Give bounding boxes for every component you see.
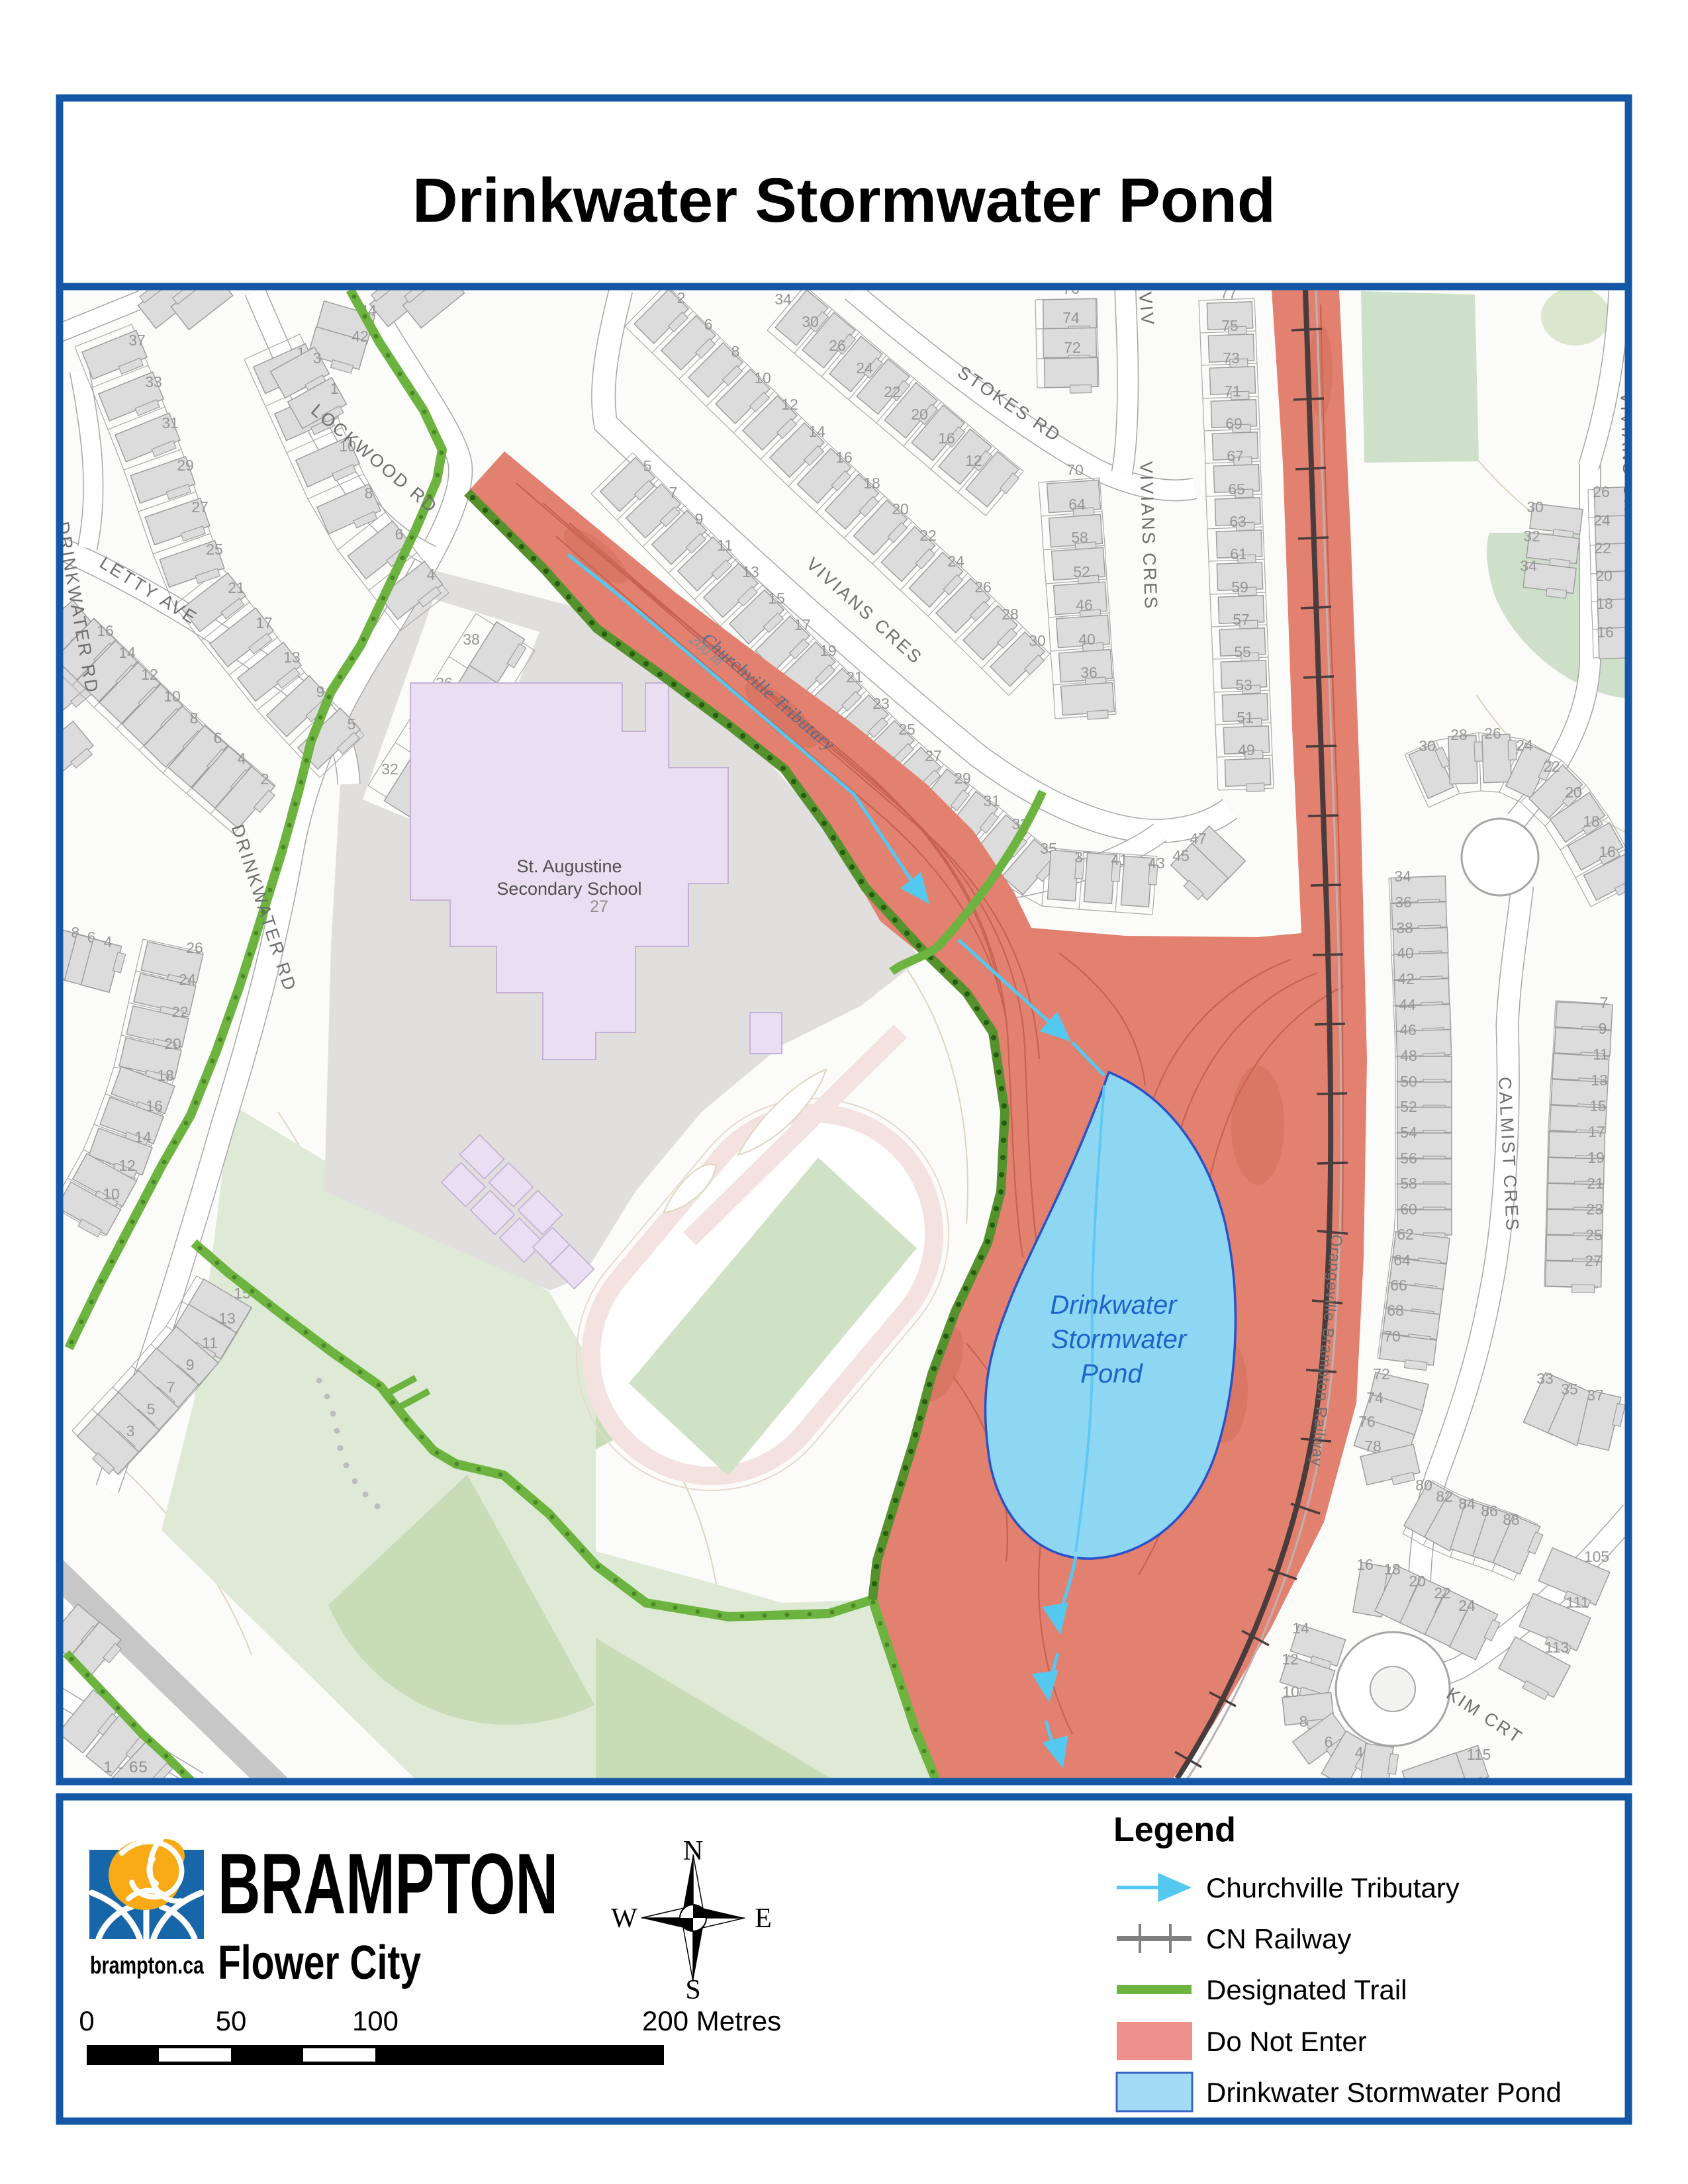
svg-text:69: 69 [1225,415,1243,432]
svg-text:15: 15 [1589,1097,1607,1115]
svg-text:71: 71 [1224,383,1241,400]
svg-text:21: 21 [1587,1175,1604,1192]
svg-text:42: 42 [352,328,369,345]
svg-text:30: 30 [1526,498,1544,516]
svg-text:49: 49 [1238,741,1255,758]
svg-text:19: 19 [1587,1149,1605,1166]
svg-text:3: 3 [126,1422,135,1439]
svg-text:29: 29 [954,770,971,787]
svg-text:5: 5 [643,457,652,475]
svg-text:7: 7 [1600,994,1609,1011]
svg-text:7: 7 [669,484,678,501]
svg-text:22: 22 [1594,539,1611,557]
svg-text:28: 28 [1002,606,1019,623]
svg-text:16: 16 [938,430,955,447]
svg-text:46: 46 [1399,1021,1417,1038]
svg-text:18: 18 [1583,813,1600,830]
svg-text:CN Railway: CN Railway [1206,1923,1351,1954]
svg-text:60: 60 [1400,1201,1417,1218]
svg-text:26: 26 [1484,725,1501,742]
svg-text:9: 9 [186,1356,195,1373]
svg-text:13: 13 [742,563,759,580]
svg-text:115: 115 [1467,1746,1491,1763]
svg-text:75: 75 [1221,317,1239,334]
svg-text:9: 9 [695,510,704,527]
svg-text:59: 59 [1231,578,1248,596]
svg-text:12: 12 [1282,1651,1299,1668]
svg-text:25: 25 [898,721,915,738]
svg-text:13: 13 [218,1310,236,1327]
svg-text:28: 28 [1450,726,1468,743]
svg-text:26: 26 [186,939,203,956]
svg-text:37: 37 [128,332,146,349]
svg-text:1: 1 [330,380,339,397]
svg-text:22: 22 [1434,1584,1451,1602]
svg-text:St. Augustine: St. Augustine [516,856,622,876]
svg-text:36: 36 [1395,893,1412,911]
svg-text:17: 17 [794,616,811,633]
svg-text:16: 16 [97,622,114,639]
svg-text:78: 78 [1364,1437,1382,1455]
svg-text:33: 33 [145,373,162,390]
svg-text:29: 29 [177,457,194,474]
svg-text:6: 6 [214,729,222,747]
svg-text:62: 62 [1397,1226,1414,1243]
svg-text:58: 58 [1071,529,1088,546]
svg-text:1 - 65: 1 - 65 [103,1758,148,1776]
svg-text:13: 13 [283,649,301,666]
svg-text:76: 76 [1358,1413,1376,1430]
svg-text:34: 34 [774,291,792,308]
svg-text:5: 5 [147,1400,156,1418]
svg-text:74: 74 [1366,1389,1383,1406]
svg-text:25: 25 [206,541,223,558]
svg-text:2: 2 [261,770,269,788]
svg-text:105: 105 [1584,1548,1609,1565]
svg-text:Drinkwater: Drinkwater [1050,1291,1178,1320]
svg-text:brampton.ca: brampton.ca [90,1952,204,1979]
svg-text:50: 50 [1400,1073,1417,1090]
svg-text:20: 20 [1595,567,1613,584]
svg-text:12: 12 [965,452,982,469]
svg-text:70: 70 [1066,461,1084,478]
svg-text:38: 38 [1396,919,1413,936]
svg-text:64: 64 [1393,1251,1411,1269]
svg-text:12: 12 [141,666,158,683]
svg-text:72: 72 [1064,339,1081,356]
svg-text:0: 0 [79,2005,94,2036]
svg-text:46: 46 [1076,596,1093,614]
svg-text:19: 19 [820,642,837,659]
svg-text:31: 31 [162,414,179,432]
svg-text:40: 40 [1078,631,1096,648]
svg-text:27: 27 [925,747,942,764]
svg-text:7: 7 [167,1379,175,1396]
svg-text:18: 18 [157,1067,174,1084]
svg-text:2: 2 [677,289,686,306]
svg-text:23: 23 [872,695,890,712]
svg-text:9: 9 [1599,1020,1607,1037]
svg-text:16: 16 [1599,843,1616,860]
svg-text:50: 50 [216,2005,247,2036]
svg-text:63: 63 [1229,513,1246,530]
svg-text:42: 42 [1397,970,1415,987]
svg-text:21: 21 [228,579,245,596]
svg-text:4: 4 [104,933,113,950]
svg-text:22: 22 [919,527,937,544]
svg-text:Pond: Pond [1080,1359,1143,1388]
svg-text:4: 4 [1355,1744,1364,1761]
svg-text:113: 113 [1545,1639,1570,1656]
svg-text:24: 24 [1458,1597,1476,1614]
svg-text:Stormwater: Stormwater [1051,1325,1188,1354]
svg-text:6: 6 [395,525,404,543]
svg-text:Drinkwater Stormwater Pond: Drinkwater Stormwater Pond [412,165,1276,236]
svg-text:55: 55 [1234,643,1251,660]
svg-text:Drinkwater Stormwater Pond: Drinkwater Stormwater Pond [1206,2077,1562,2108]
svg-text:24: 24 [1516,737,1533,754]
svg-text:Do Not Enter: Do Not Enter [1206,2026,1367,2057]
svg-text:70: 70 [1383,1328,1401,1345]
svg-text:40: 40 [1397,944,1414,962]
svg-text:27: 27 [590,897,608,916]
svg-text:Secondary School: Secondary School [496,879,641,899]
svg-text:111: 111 [1566,1594,1589,1611]
svg-text:23: 23 [1586,1201,1603,1218]
svg-text:44: 44 [1399,996,1416,1013]
svg-text:58: 58 [1400,1175,1417,1192]
svg-text:10: 10 [754,369,771,387]
svg-text:100: 100 [352,2005,399,2036]
svg-text:Flower City: Flower City [218,1936,421,1989]
svg-text:14: 14 [134,1128,152,1146]
svg-text:24: 24 [947,553,964,570]
svg-text:34: 34 [1394,868,1411,885]
svg-text:72: 72 [1373,1365,1390,1383]
svg-text:8: 8 [190,709,199,727]
svg-text:31: 31 [983,792,1000,809]
svg-text:8: 8 [731,343,740,360]
svg-text:17: 17 [256,614,273,631]
svg-text:10: 10 [164,688,181,705]
svg-text:86: 86 [1481,1502,1498,1520]
svg-text:43: 43 [1148,854,1165,872]
svg-text:10: 10 [1282,1683,1299,1700]
svg-text:68: 68 [1387,1302,1404,1319]
svg-text:10: 10 [103,1185,120,1203]
svg-text:E: E [755,1903,772,1934]
svg-text:26: 26 [829,337,846,354]
svg-text:45: 45 [1172,847,1190,864]
svg-text:Legend: Legend [1113,1811,1236,1849]
svg-text:5: 5 [348,715,356,733]
svg-text:16: 16 [146,1097,163,1115]
svg-text:15: 15 [768,590,785,607]
svg-text:20: 20 [164,1035,181,1052]
svg-text:52: 52 [1400,1098,1417,1115]
svg-text:13: 13 [1591,1071,1608,1089]
svg-text:3: 3 [313,349,322,367]
svg-text:16: 16 [835,449,853,466]
svg-text:21: 21 [846,668,863,686]
svg-text:4: 4 [238,750,246,767]
svg-text:8: 8 [1299,1713,1308,1730]
svg-text:Churchville Tributary: Churchville Tributary [1206,1872,1460,1903]
svg-text:37: 37 [1587,1387,1604,1404]
svg-text:24: 24 [856,359,873,377]
svg-text:48: 48 [1400,1047,1417,1064]
svg-text:20: 20 [911,406,928,423]
svg-text:11: 11 [1593,1046,1609,1063]
svg-text:33: 33 [1536,1370,1554,1387]
svg-text:32: 32 [381,760,399,778]
svg-text:11: 11 [202,1334,218,1351]
svg-text:VIV: VIV [1135,291,1158,328]
svg-text:14: 14 [808,423,825,440]
svg-text:16: 16 [1356,1556,1374,1573]
svg-text:14: 14 [1292,1619,1309,1637]
svg-text:30: 30 [1029,632,1046,649]
svg-text:26: 26 [1593,483,1610,500]
svg-text:25: 25 [1585,1226,1603,1244]
svg-text:11: 11 [717,537,733,554]
svg-text:74: 74 [1062,309,1080,326]
svg-text:Designated Trail: Designated Trail [1206,1974,1407,2005]
svg-text:8: 8 [365,484,373,502]
svg-text:34: 34 [1520,557,1537,574]
svg-text:17: 17 [1588,1123,1605,1140]
svg-text:22: 22 [171,1003,189,1021]
svg-text:20: 20 [1409,1572,1426,1590]
svg-text:38: 38 [463,631,480,648]
svg-text:9: 9 [316,683,325,700]
svg-text:32: 32 [1523,527,1540,545]
svg-text:30: 30 [1419,737,1436,754]
svg-text:18: 18 [863,475,880,492]
svg-text:27: 27 [191,498,209,516]
svg-text:12: 12 [118,1157,136,1174]
svg-text:67: 67 [1227,447,1244,465]
svg-text:84: 84 [1458,1495,1476,1512]
svg-text:61: 61 [1230,545,1247,563]
svg-text:18: 18 [1596,595,1613,612]
svg-text:22: 22 [1543,758,1560,775]
svg-text:51: 51 [1237,709,1254,726]
svg-text:22: 22 [884,383,901,400]
svg-text:18: 18 [1383,1561,1401,1578]
svg-text:27: 27 [1585,1252,1602,1269]
svg-text:24: 24 [1593,512,1611,529]
svg-text:88: 88 [1503,1511,1520,1528]
svg-text:6: 6 [704,316,713,333]
svg-text:BRAMPTON: BRAMPTON [218,1835,558,1932]
svg-text:6: 6 [1325,1733,1333,1751]
svg-text:53: 53 [1235,676,1252,694]
svg-text:12: 12 [781,396,798,413]
svg-text:20: 20 [1565,784,1582,801]
svg-text:52: 52 [1073,563,1090,580]
svg-text:36: 36 [1080,664,1098,681]
svg-text:4: 4 [427,566,436,583]
svg-text:W: W [611,1903,637,1934]
svg-text:56: 56 [1400,1150,1417,1167]
svg-text:24: 24 [179,971,196,988]
svg-text:16: 16 [1597,623,1614,641]
svg-text:35: 35 [1561,1381,1578,1398]
svg-text:20: 20 [892,500,909,518]
svg-text:14: 14 [118,644,136,661]
svg-text:73: 73 [1223,349,1240,367]
svg-text:54: 54 [1400,1124,1417,1141]
svg-text:200 Metres: 200 Metres [642,2005,781,2036]
svg-text:30: 30 [802,313,819,330]
svg-text:66: 66 [1390,1277,1407,1294]
svg-text:65: 65 [1228,480,1245,498]
svg-text:64: 64 [1068,496,1086,513]
svg-text:80: 80 [1415,1477,1432,1494]
svg-text:26: 26 [974,578,992,596]
svg-text:82: 82 [1436,1488,1453,1505]
svg-text:57: 57 [1233,611,1250,628]
